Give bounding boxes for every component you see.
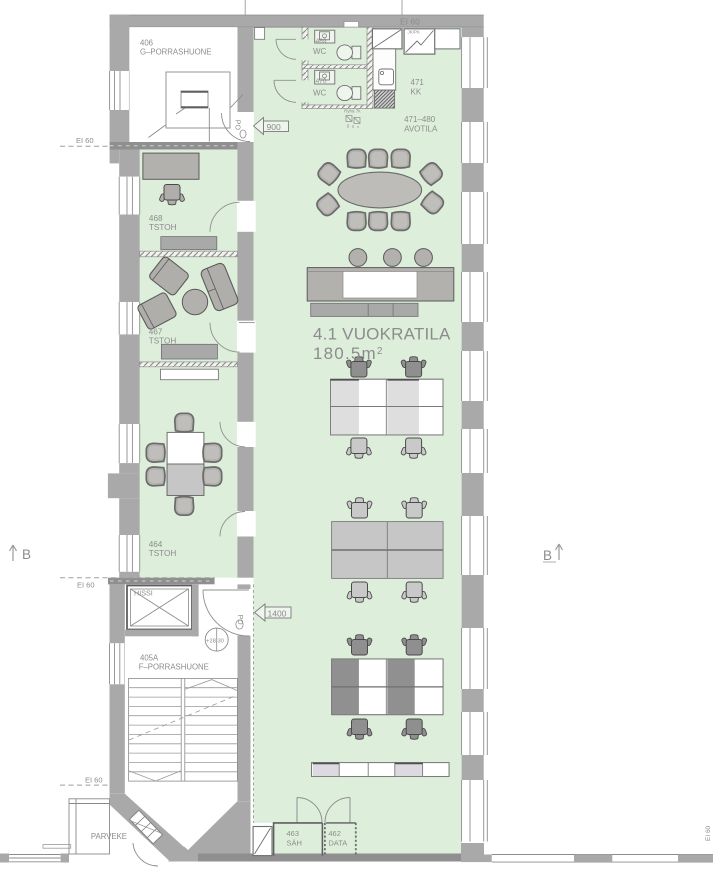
svg-text:471: 471 — [411, 78, 425, 87]
svg-text:467: 467 — [149, 327, 163, 336]
svg-text:WC: WC — [313, 89, 327, 98]
svg-text:F–PORRASHUONE: F–PORRASHUONE — [139, 663, 209, 672]
svg-text:EI 60: EI 60 — [400, 17, 420, 27]
svg-text:G–PORRASHUONE: G–PORRASHUONE — [140, 48, 212, 57]
svg-text:KK: KK — [411, 87, 422, 96]
svg-text:464: 464 — [149, 540, 163, 549]
svg-text:463: 463 — [287, 829, 300, 838]
svg-text:180.5m2: 180.5m2 — [313, 344, 384, 363]
svg-text:EI 60: EI 60 — [76, 136, 94, 145]
svg-text:406: 406 — [140, 39, 153, 48]
svg-text:470: 470 — [316, 78, 327, 85]
svg-text:EI 60: EI 60 — [85, 776, 103, 785]
svg-text:SÄH: SÄH — [287, 838, 302, 847]
svg-text:PARVEKE: PARVEKE — [91, 832, 127, 841]
svg-text:B: B — [22, 547, 31, 562]
svg-text:WC: WC — [313, 47, 327, 56]
svg-text:471–480: 471–480 — [404, 115, 436, 124]
svg-text:TSTOH: TSTOH — [149, 549, 177, 558]
svg-text:1400: 1400 — [268, 609, 287, 619]
svg-text:B: B — [543, 548, 552, 563]
svg-text:469: 469 — [316, 38, 327, 45]
svg-text:EI 60: EI 60 — [705, 825, 712, 841]
svg-text:JK/PK: JK/PK — [408, 30, 421, 35]
svg-text:HISSI: HISSI — [134, 589, 153, 598]
svg-text:462: 462 — [328, 829, 341, 838]
svg-text:AVOTILA: AVOTILA — [404, 124, 438, 133]
svg-text:PO: PO — [236, 615, 243, 626]
svg-text:468: 468 — [149, 214, 163, 223]
svg-text:TSTOH: TSTOH — [149, 336, 177, 345]
svg-text:405A: 405A — [140, 653, 159, 662]
svg-text:+28.30: +28.30 — [206, 638, 224, 644]
svg-text:DATA: DATA — [328, 838, 347, 847]
svg-text:4.1 VUOKRATILA: 4.1 VUOKRATILA — [313, 325, 451, 344]
svg-text:EI 60: EI 60 — [77, 581, 95, 590]
svg-text:TSTOH: TSTOH — [149, 223, 177, 232]
svg-text:900: 900 — [267, 122, 281, 132]
svg-text:PO: PO — [234, 120, 241, 131]
svg-text:Ryhä 7k: Ryhä 7k — [344, 109, 361, 114]
